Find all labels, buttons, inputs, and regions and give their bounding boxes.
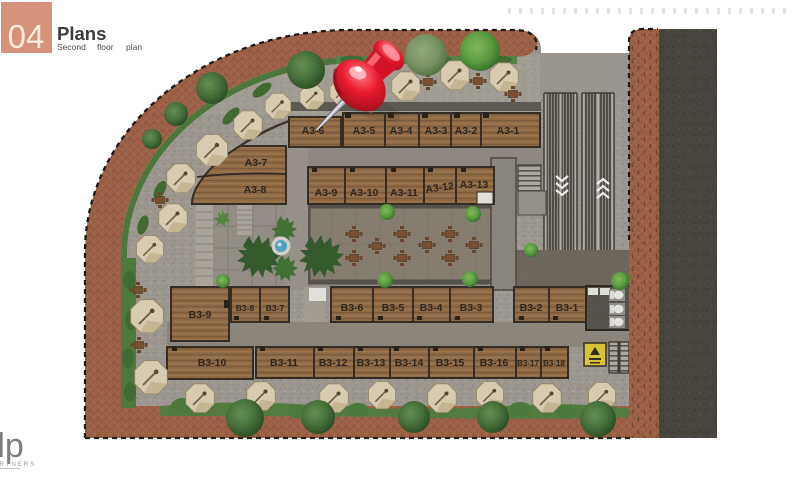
svg-text:plan: plan bbox=[126, 42, 142, 52]
svg-text:Plans: Plans bbox=[57, 23, 106, 44]
svg-text:PARTNERS: PARTNERS bbox=[0, 462, 36, 468]
svg-text:dp: dp bbox=[0, 427, 24, 465]
svg-text:Second: Second bbox=[57, 42, 86, 52]
svg-text:04: 04 bbox=[8, 18, 45, 55]
svg-text:floor: floor bbox=[97, 42, 114, 52]
